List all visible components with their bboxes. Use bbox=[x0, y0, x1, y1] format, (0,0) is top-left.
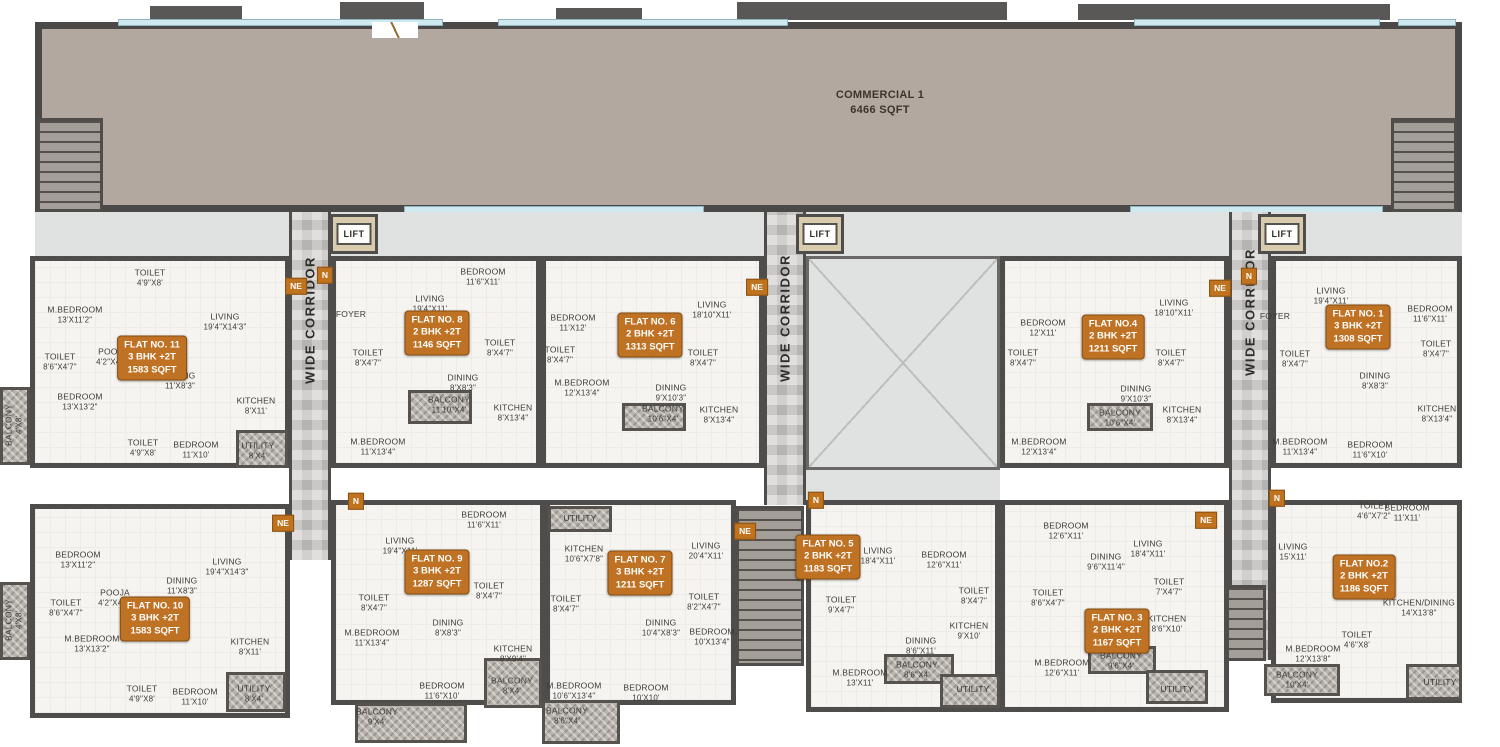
room-label-balcony: BALCONY10'X4' bbox=[1276, 671, 1318, 690]
compass-badge-ne: NE bbox=[1195, 512, 1217, 529]
room-label-bedroom: BEDROOM11'6"X11' bbox=[1407, 305, 1452, 324]
room-label-living: LIVING18'10"X11' bbox=[692, 301, 731, 320]
room-label-bedroom: BEDROOM12'6"X11' bbox=[921, 551, 966, 570]
room-label-kitchen: KITCHEN9'X10' bbox=[950, 622, 989, 641]
compass-badge-n: N bbox=[317, 267, 333, 284]
lift-shaft: LIFT bbox=[330, 214, 378, 254]
compass-badge-ne: NE bbox=[734, 523, 756, 540]
lift-shaft: LIFT bbox=[1258, 214, 1306, 254]
room-label-dining: DINING11'X8'3" bbox=[167, 577, 198, 596]
room-label-toilet: TOILET8'X4'7" bbox=[353, 349, 384, 368]
room-label-balcony: BALCONY8'6"X4' bbox=[546, 707, 588, 726]
flat-6-badge: FLAT NO. 62 BHK +2T1313 SQFT bbox=[617, 312, 682, 357]
commercial-area bbox=[35, 22, 1462, 212]
room-label-toilet: TOILET7'X4'7" bbox=[1154, 578, 1185, 597]
room-label-utility: UTILITY bbox=[563, 514, 596, 524]
flat-1-badge: FLAT NO. 13 BHK +2T1308 SQFT bbox=[1325, 304, 1390, 349]
commercial-entrance bbox=[372, 22, 418, 38]
room-label-utility: UTILITY8'X4' bbox=[241, 442, 274, 461]
room-label-toilet: TOILET8'X4'7" bbox=[485, 339, 516, 358]
commercial-name: COMMERCIAL 1 bbox=[836, 89, 924, 101]
room-label-dining: DINING8'6"X11' bbox=[906, 637, 937, 656]
room-label-living: LIVING20'4"X11' bbox=[689, 542, 724, 561]
room-label-kitchen: KITCHEN10'6"X7'8" bbox=[565, 545, 604, 564]
flat-8-badge: FLAT NO. 82 BHK +2T1146 SQFT bbox=[404, 310, 469, 355]
room-label-toilet: TOILET8'X4'7" bbox=[688, 349, 719, 368]
room-label-balcony: BALCONY10'6"X4' bbox=[1099, 409, 1141, 428]
room-label-toilet: TOILET8'X4'7" bbox=[545, 346, 576, 365]
parapet-block bbox=[737, 2, 1007, 20]
lift-shaft: LIFT bbox=[796, 214, 844, 254]
lift-label: LIFT bbox=[337, 223, 372, 245]
floor-plan: COMMERCIAL 1 6466 SQFT WIDE CORRIDOR WID… bbox=[0, 0, 1500, 747]
room-label-living: LIVING19'4"X14'3" bbox=[204, 313, 247, 332]
room-label-bedroom: BEDROOM11'X12' bbox=[550, 314, 595, 333]
room-label-m-bedroom: M.BEDROOM12'X13'8" bbox=[1285, 645, 1340, 664]
room-label-dining: DINING9'6"X11'4" bbox=[1087, 553, 1125, 572]
room-label-living: LIVING18'4"X11' bbox=[861, 547, 896, 566]
room-label-bedroom: BEDROOM11'X10' bbox=[172, 688, 217, 707]
stairwell bbox=[37, 118, 103, 212]
lift-label: LIFT bbox=[1265, 223, 1300, 245]
parapet-block bbox=[1078, 4, 1390, 20]
room-label-toilet: TOILET8'X4'7" bbox=[959, 587, 990, 606]
flat-10-badge: FLAT NO. 103 BHK +2T1583 SQFT bbox=[120, 596, 190, 641]
room-label-toilet: TOILET8'X4'7" bbox=[1008, 349, 1039, 368]
lift-label: LIFT bbox=[803, 223, 838, 245]
room-label-kitchen: KITCHEN8'X13'4" bbox=[1163, 406, 1202, 425]
room-label-bedroom: BEDROOM11'6"X10' bbox=[419, 682, 464, 701]
room-label-toilet: TOILET8'X4'7" bbox=[359, 594, 390, 613]
room-label-toilet: TOILET4'9"X8' bbox=[128, 439, 159, 458]
flat-11-badge: FLAT NO. 113 BHK +2T1583 SQFT bbox=[117, 335, 187, 380]
room-label-balcony: BALCONY8'6"X4' bbox=[896, 661, 938, 680]
room-label-bedroom: BEDROOM11'6"X10' bbox=[1347, 441, 1392, 460]
room-label-kitchen: KITCHEN8'X13'4" bbox=[1418, 405, 1457, 424]
room-label-kitchen-dining: KITCHEN/DINING14'X13'8" bbox=[1383, 599, 1455, 618]
room-label-bedroom: BEDROOM11'X10' bbox=[173, 441, 218, 460]
room-label-toilet: TOILET4'9"X8' bbox=[135, 269, 166, 288]
room-label-dining: DINING10'4"X8'3" bbox=[642, 619, 680, 638]
commercial-label: COMMERCIAL 1 6466 SQFT bbox=[836, 88, 924, 118]
room-label-utility: UTILITY8'X4' bbox=[237, 685, 270, 704]
room-label-m-bedroom: M.BEDROOM11'X13'4" bbox=[344, 629, 399, 648]
room-label-living: LIVING15'X11' bbox=[1278, 543, 1307, 562]
room-label-toilet: TOILET9'X4'7" bbox=[826, 596, 857, 615]
room-label-dining: DINING9'X10'3" bbox=[1121, 385, 1152, 404]
room-label-m-bedroom: M.BEDROOM12'X13'4" bbox=[1011, 438, 1066, 457]
room-label-balcony: BALCONY10'6"X4' bbox=[642, 405, 684, 424]
room-label-living: LIVING18'10"X11' bbox=[1154, 299, 1193, 318]
room-label-toilet: TOILET8'6"X4'7" bbox=[49, 599, 83, 618]
compass-badge-n: N bbox=[1269, 490, 1285, 507]
room-label-kitchen: KITCHEN8'X11' bbox=[231, 638, 270, 657]
room-label-m-bedroom: M.BEDROOM12'6"X11' bbox=[1034, 659, 1089, 678]
room-label-bedroom: BEDROOM13'X13'2" bbox=[57, 393, 102, 412]
room-label-balcony: BALCONY4'X8' bbox=[5, 404, 24, 446]
room-label-m-bedroom: M.BEDROOM13'X11'2" bbox=[47, 306, 102, 325]
room-label-toilet: TOILET8'X4'7" bbox=[551, 595, 582, 614]
room-label-utility: UTILITY bbox=[1423, 678, 1456, 688]
compass-badge-n: N bbox=[1241, 268, 1257, 285]
room-label-dining: DINING9'X10'3" bbox=[656, 384, 687, 403]
room-label-utility: UTILITY bbox=[956, 685, 989, 695]
flat-9-badge: FLAT NO. 93 BHK +2T1287 SQFT bbox=[404, 549, 469, 594]
room-label-toilet: TOILET8'6"X4'7" bbox=[43, 353, 77, 372]
open-area bbox=[806, 470, 1000, 504]
room-label-bedroom: BEDROOM13'X11'2" bbox=[55, 551, 100, 570]
window-strip bbox=[498, 19, 788, 26]
room-label-toilet: TOILET4'9"X8' bbox=[127, 685, 158, 704]
compass-badge-ne: NE bbox=[1209, 280, 1231, 297]
room-label-bedroom: BEDROOM12'X11' bbox=[1020, 319, 1065, 338]
flat-2-badge: FLAT NO.22 BHK +2T1186 SQFT bbox=[1333, 554, 1396, 599]
corridor-label: WIDE CORRIDOR bbox=[303, 256, 318, 384]
window-strip bbox=[1398, 19, 1456, 26]
commercial-area-value: 6466 SQFT bbox=[850, 104, 910, 116]
room-label-living: LIVING19'4"X14'3" bbox=[206, 558, 249, 577]
room-label-balcony: BALCONY8'X4' bbox=[491, 677, 533, 696]
room-label-dining: DINING8'X8'3" bbox=[1360, 372, 1391, 391]
compass-badge-n: N bbox=[808, 492, 824, 509]
room-label-m-bedroom: M.BEDROOM13'X11' bbox=[832, 669, 887, 688]
room-label-dining: DINING8'X8'3" bbox=[448, 374, 479, 393]
room-label-utility: UTILITY bbox=[1160, 685, 1193, 695]
compass-badge-ne: NE bbox=[285, 278, 307, 295]
stairwell bbox=[1391, 118, 1457, 212]
room-label-kitchen: KITCHEN8'X13'4" bbox=[700, 406, 739, 425]
window-strip bbox=[1134, 19, 1380, 26]
room-label-toilet: TOILET4'6"X8' bbox=[1342, 631, 1373, 650]
room-label-m-bedroom: M.BEDROOM13'X13'2" bbox=[64, 635, 119, 654]
open-court bbox=[806, 256, 1000, 470]
compass-badge-n: N bbox=[348, 493, 364, 510]
room-label-kitchen: KITCHEN8'X11' bbox=[237, 397, 276, 416]
flat-3-badge: FLAT NO. 32 BHK +2T1167 SQFT bbox=[1084, 608, 1149, 653]
room-label-toilet: TOILET8'X4'7" bbox=[1156, 349, 1187, 368]
compass-badge-ne: NE bbox=[746, 279, 768, 296]
flat-7-badge: FLAT NO. 73 BHK +2T1211 SQFT bbox=[607, 550, 672, 595]
room-label-toilet: TOILET8'X4'7" bbox=[474, 582, 505, 601]
room-label-bedroom: BEDROOM12'6"X11' bbox=[1043, 522, 1088, 541]
room-label-m-bedroom: M.BEDROOM12'X13'4" bbox=[554, 379, 609, 398]
room-label-balcony: BALCONY4'X8' bbox=[5, 599, 24, 641]
room-label-living: LIVING18'4"X11' bbox=[1131, 540, 1166, 559]
compass-badge-ne: NE bbox=[272, 515, 294, 532]
room-label-foyer: FOYER bbox=[1260, 312, 1290, 322]
room-label-bedroom: BEDROOM11'6"X11' bbox=[460, 268, 505, 287]
room-label-toilet: TOILET8'6"X4'7" bbox=[1031, 589, 1065, 608]
room-label-kitchen: KITCHEN8'X13'4" bbox=[494, 404, 533, 423]
room-label-bedroom: BEDROOM10'X13'4" bbox=[689, 628, 734, 647]
room-label-balcony: BALCONY9'6"X4' bbox=[1100, 652, 1142, 671]
room-label-toilet: TOILET8'X4'7" bbox=[1421, 340, 1452, 359]
room-label-balcony: BALCONY11'10"X4' bbox=[428, 396, 470, 415]
flat-5-badge: FLAT NO. 52 BHK +2T1183 SQFT bbox=[795, 534, 860, 579]
room-label-bedroom: BEDROOM10'X10' bbox=[623, 684, 668, 703]
room-label-kitchen: KITCHEN8'X9'4" bbox=[494, 645, 533, 664]
room-label-m-bedroom: M.BEDROOM11'X13'4" bbox=[1272, 438, 1327, 457]
room-label-toilet: TOILET8'2"X4'7" bbox=[687, 593, 721, 612]
room-label-foyer: FOYER bbox=[336, 310, 366, 320]
room-label-bedroom: BEDROOM11'X11' bbox=[1384, 504, 1429, 523]
room-label-toilet: TOILET8'X4'7" bbox=[1280, 350, 1311, 369]
room-label-dining: DINING8'X8'3" bbox=[433, 619, 464, 638]
room-label-m-bedroom: M.BEDROOM11'X13'4" bbox=[350, 438, 405, 457]
room-label-living: LIVING19'4"X11' bbox=[1314, 287, 1349, 306]
room-label-m-bedroom: M.BEDROOM10'6"X13'4" bbox=[546, 682, 601, 701]
flat-4-badge: FLAT NO.42 BHK +2T1211 SQFT bbox=[1082, 314, 1145, 359]
room-label-kitchen: KITCHEN8'6"X10' bbox=[1148, 615, 1187, 634]
corridor-label: WIDE CORRIDOR bbox=[778, 254, 793, 382]
room-label-bedroom: BEDROOM11'6"X11' bbox=[461, 511, 506, 530]
room-label-balcony: BALCONY9'X4' bbox=[356, 708, 398, 727]
